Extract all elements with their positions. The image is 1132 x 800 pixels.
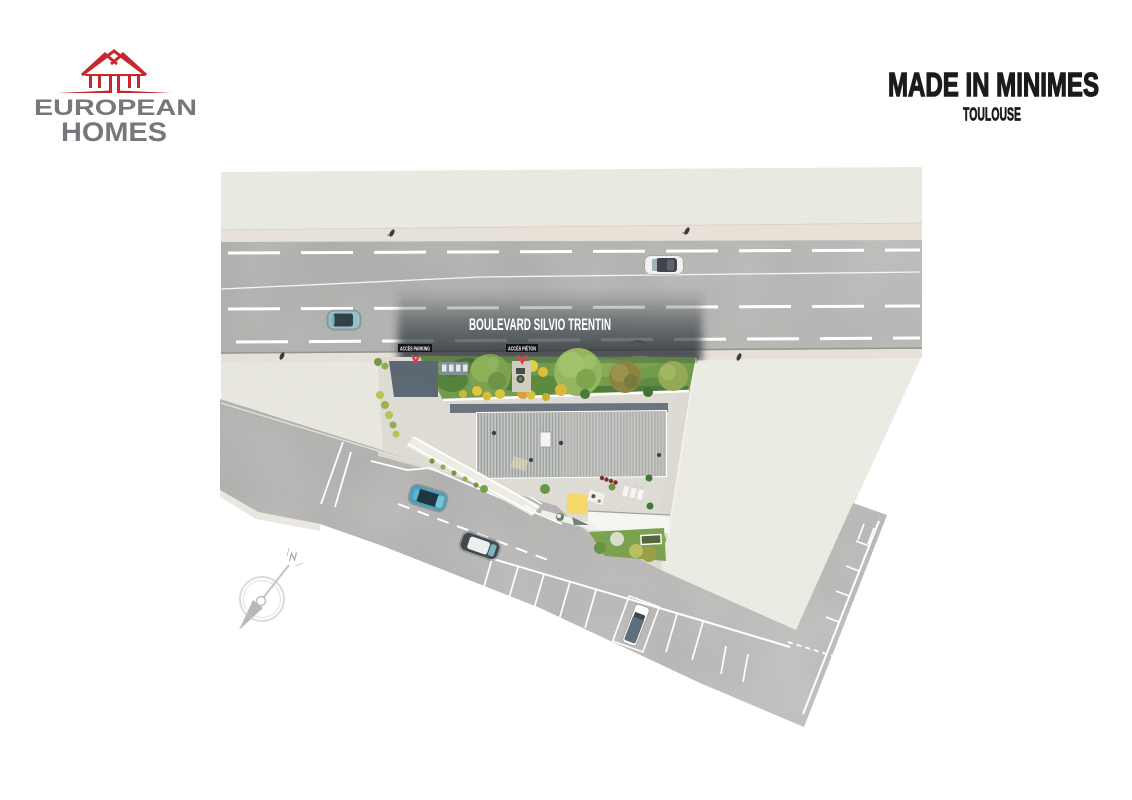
svg-text:ACCÈS PIÉTON: ACCÈS PIÉTON xyxy=(508,344,536,352)
svg-text:ACCÈS PARKING: ACCÈS PARKING xyxy=(400,344,430,352)
svg-text:HOMES: HOMES xyxy=(61,117,167,147)
svg-text:MADE IN MINIMES: MADE IN MINIMES xyxy=(888,67,1099,104)
svg-text:BOULEVARD SILVIO TRENTIN: BOULEVARD SILVIO TRENTIN xyxy=(469,316,611,334)
svg-text:TOULOUSE: TOULOUSE xyxy=(963,105,1021,125)
